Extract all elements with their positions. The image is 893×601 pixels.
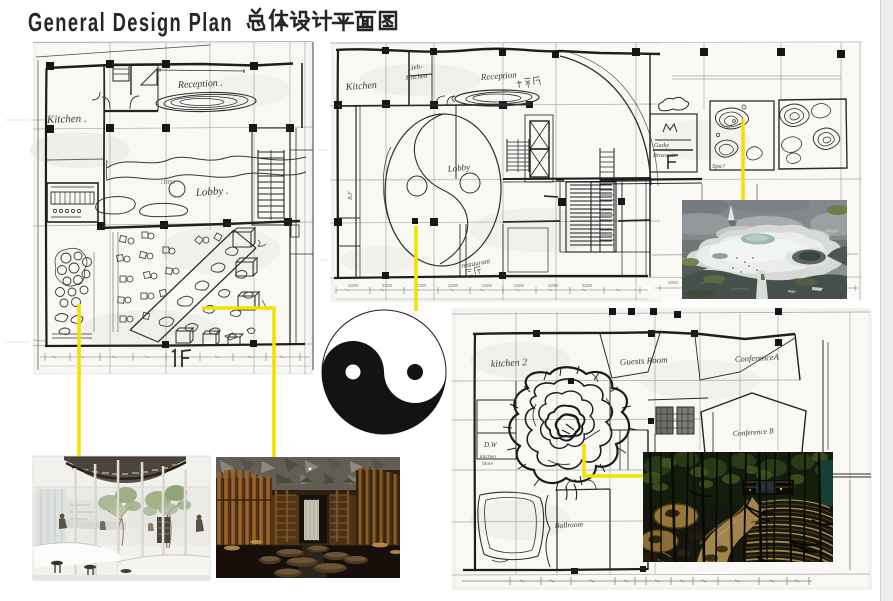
svg-text:3200: 3200: [548, 283, 559, 288]
svg-text:↓1053: ↓1053: [160, 180, 175, 186]
svg-text:4000: 4000: [668, 280, 679, 285]
svg-text:3200: 3200: [382, 283, 393, 288]
svg-text:B.F: B.F: [348, 191, 354, 200]
svg-text:3200: 3200: [482, 283, 493, 288]
svg-text:3200: 3200: [448, 283, 459, 288]
svg-text:Kitchen: Kitchen: [344, 80, 377, 93]
svg-text:Gusky: Gusky: [654, 143, 669, 149]
svg-text:Ballroom: Ballroom: [555, 520, 584, 530]
svg-text:kitchen 2: kitchen 2: [491, 357, 528, 370]
svg-text:Lobby .: Lobby .: [194, 185, 229, 199]
svg-text:3200: 3200: [582, 283, 593, 288]
svg-text:Brasserie: Brasserie: [653, 153, 676, 159]
svg-text:Lieb-: Lieb-: [406, 62, 423, 72]
svg-text:Spa?: Spa?: [712, 163, 726, 170]
svg-text:General Design Plan: General Design Plan: [28, 7, 233, 37]
svg-text:Kitchen .: Kitchen .: [46, 113, 87, 126]
svg-text:3200: 3200: [514, 283, 525, 288]
svg-text:Store: Store: [482, 461, 494, 467]
svg-text:kitchen: kitchen: [480, 454, 496, 460]
svg-text:D.W: D.W: [483, 441, 498, 449]
svg-text:3200: 3200: [348, 283, 359, 288]
